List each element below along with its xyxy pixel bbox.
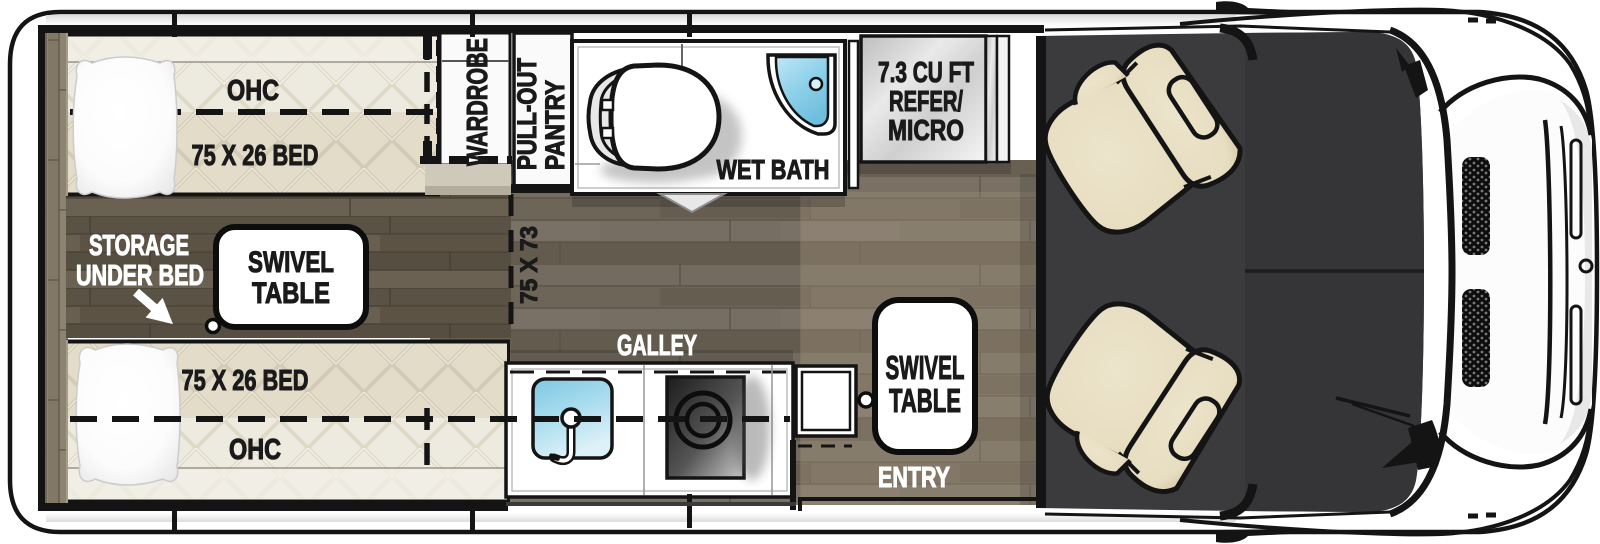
- svg-text:75 X 73: 75 X 73: [516, 226, 543, 304]
- svg-text:WARDROBE: WARDROBE: [462, 38, 494, 166]
- svg-text:7.3 CU FT: 7.3 CU FT: [878, 57, 974, 89]
- svg-text:ENTRY: ENTRY: [878, 462, 950, 494]
- svg-text:WET BATH: WET BATH: [717, 154, 830, 185]
- svg-text:MICRO: MICRO: [888, 115, 964, 147]
- svg-text:TABLE: TABLE: [889, 382, 961, 419]
- svg-text:PANTRY: PANTRY: [540, 80, 570, 170]
- svg-text:PULL-OUT: PULL-OUT: [512, 58, 542, 170]
- svg-text:75 X 26 BED: 75 X 26 BED: [182, 365, 309, 397]
- svg-text:OHC: OHC: [229, 434, 281, 466]
- svg-text:TABLE: TABLE: [252, 277, 330, 310]
- svg-text:UNDER BED: UNDER BED: [76, 260, 204, 292]
- svg-text:SWIVEL: SWIVEL: [886, 349, 965, 386]
- svg-text:GALLEY: GALLEY: [617, 330, 697, 362]
- svg-text:SWIVEL: SWIVEL: [248, 246, 334, 279]
- svg-text:REFER/: REFER/: [889, 86, 963, 118]
- svg-text:75 X 26 BED: 75 X 26 BED: [192, 140, 319, 172]
- svg-text:OHC: OHC: [227, 75, 279, 107]
- svg-text:STORAGE: STORAGE: [89, 230, 189, 262]
